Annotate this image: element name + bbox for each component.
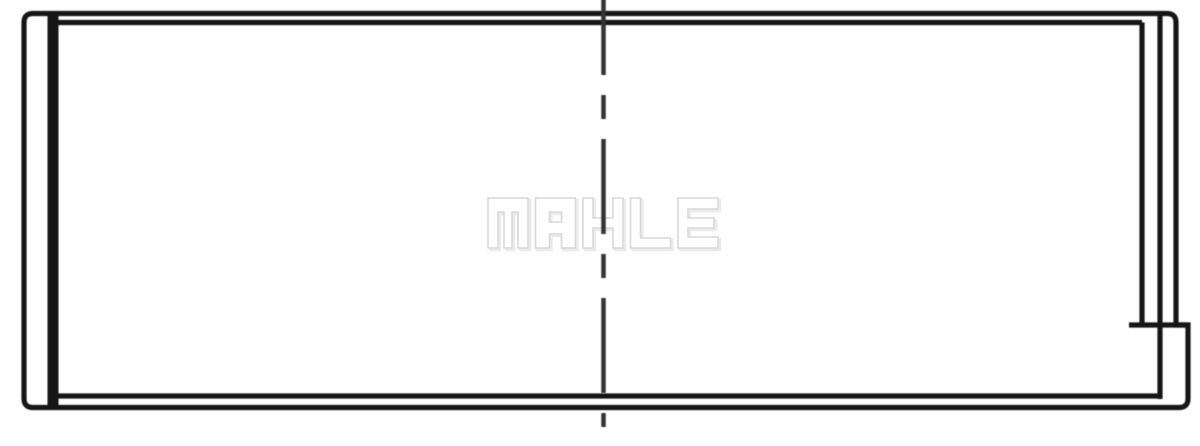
watermark-letter <box>678 198 718 248</box>
watermark-letter <box>488 198 528 248</box>
bushing-technical-drawing <box>0 0 1200 446</box>
catalog-product-image <box>0 0 1200 446</box>
